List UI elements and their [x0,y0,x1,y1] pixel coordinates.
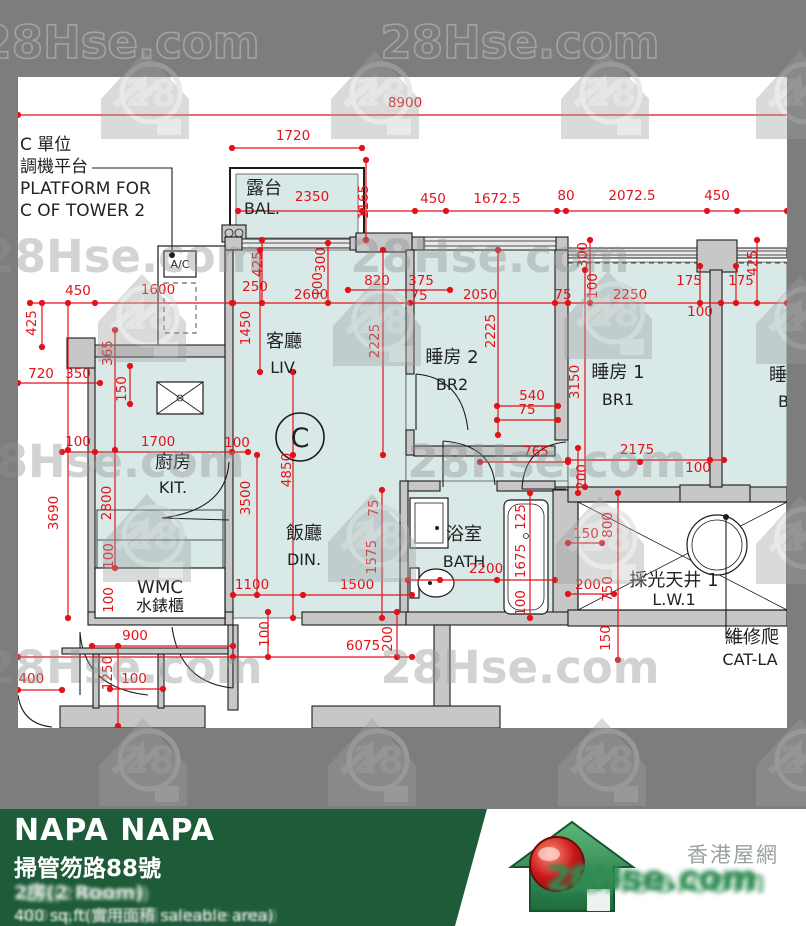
dim-point [15,654,21,660]
room-label-bal: 露台 [246,178,282,199]
dim-label: 2072.5 [608,188,655,204]
dim-point [527,490,533,496]
dim-label: 175 [676,273,702,289]
dim-point [495,432,501,438]
dim-label: 200 [574,464,590,490]
ac-platform-annotation: C 單位調機平台PLATFORM FORC OF TOWER 2 [20,135,151,221]
room-label-br3: 睡房 [769,365,805,386]
dim-point [718,300,724,306]
dim-point [127,363,133,369]
dim-label: 1575 [364,540,380,574]
dim-point [477,459,483,465]
dim-point [697,263,703,269]
dim-point [409,654,415,660]
brand-wordmark: 28Hse.com [546,859,760,899]
dim-label: 6075 [346,638,380,654]
dim-label: 750 [600,576,616,602]
dim-point [733,263,739,269]
dim-point [563,208,569,214]
dim-point [15,687,21,693]
dim-point [112,447,118,453]
dim-label: 765 [523,444,549,460]
dim-label: 100 [101,587,117,613]
dim-point [27,300,33,306]
dim-point [59,687,65,693]
room-label-br2: 睡房 2 [425,347,478,368]
dim-label: 2250 [613,287,647,303]
dim-label: 1450 [238,311,254,345]
dim-point [325,240,331,246]
dim-label: 350 [65,366,91,382]
dim-label: 2350 [295,189,329,205]
dim-label: 75 [410,288,427,304]
saleable-area-text: 400 sq.ft(實用面積 saleable area) [14,902,274,926]
dim-label: 1600 [141,282,175,298]
dim-point [575,445,581,451]
dim-point [363,157,369,163]
dim-point [447,287,453,293]
dim-label: 2200 [469,561,503,577]
dim-label: 1100 [235,577,269,593]
dim-label: 425 [250,251,266,277]
dim-label: 1675 [513,544,529,578]
dim-label: 100 [65,434,91,450]
dim-label: 2225 [367,324,383,358]
dim-point [787,112,793,118]
dim-point [565,540,571,546]
room-label-br1-en: BR1 [602,390,634,409]
dim-point [587,300,593,306]
dim-point [345,287,351,293]
dim-point [265,654,271,660]
estate-name: NAPA NAPA [14,813,215,848]
dim-point [115,723,121,729]
dim-point [15,112,21,118]
dim-label: 3690 [46,496,62,530]
pillar [697,240,737,272]
dim-label: 300 [575,242,591,268]
ac-annotation-line: PLATFORM FOR [20,179,151,199]
dim-point [394,654,400,660]
dim-label: 300 [313,247,329,273]
footer-bar: NAPA NAPA 掃管笏路88號 2房(2 Room) 400 sq.ft(實… [0,809,806,926]
room-label-wmc: WMC [137,577,183,598]
dim-label: 3500 [238,481,254,515]
dim-label: 425 [24,310,40,336]
dim-label: 2050 [463,287,497,303]
dim-label: 365 [100,340,116,366]
dim-point [555,417,561,423]
dim-label: 125 [513,504,529,530]
dim-point [754,300,760,306]
dim-point [494,577,500,583]
dim-label: 100 [121,671,147,687]
dim-label: 80 [557,188,574,204]
dim-point [97,380,103,386]
dim-point [379,487,385,493]
dim-label: 75 [554,287,571,303]
dim-label: 1250 [100,656,116,690]
dim-point [409,592,415,598]
dim-point [380,247,386,253]
basin-cabinet [410,498,448,548]
light-well-pipe [687,515,747,575]
dim-point [599,540,605,546]
unit-mark: C [291,423,310,454]
dim-label: 820 [364,273,390,289]
dim-point [733,300,739,306]
room-label-br3-en: BR [778,392,800,411]
dim-label: 3150 [567,365,583,399]
dim-label: 1165 [356,185,372,219]
room-label-wmc-en: 水錶櫃 [136,596,184,615]
dim-label: 800 [600,512,616,538]
dim-label: 150 [114,376,130,402]
brand-panel: 香港屋網 28Hse.com [455,809,806,926]
dim-point [300,592,306,598]
dim-label: 450 [65,283,91,299]
room-label-bal-en: BAL. [244,199,280,218]
dim-point [257,369,263,375]
dim-point [565,591,571,597]
dim-label: 8900 [388,95,422,111]
dim-point [495,247,501,253]
dim-point [265,609,271,615]
dim-label: 100 [585,273,601,299]
room-label-liv: 客廳 [266,331,302,352]
dim-label: 2800 [99,486,115,520]
dim-label: 75 [366,499,382,516]
dim-point [112,327,118,333]
dim-point [394,609,400,615]
dim-label: 100 [685,460,711,476]
dim-point [65,300,71,306]
room-label-catl: 維修爬 [725,627,779,648]
dim-label: 200 [575,577,601,593]
dim-point [615,490,621,496]
dim-point [359,145,365,151]
dim-point [554,208,560,214]
dim-point [637,459,643,465]
dim-point [15,380,21,386]
room-label-din-en: DIN. [287,550,321,569]
dim-point [784,300,790,306]
dim-point [160,686,166,692]
dim-point [555,403,561,409]
dim-point [437,577,443,583]
dim-point [412,208,418,214]
dim-point [754,237,760,243]
dim-label: 1700 [141,434,175,450]
dim-point [494,417,500,423]
dim-point [230,654,236,660]
dim-label: 2225 [483,314,499,348]
dim-label: 75 [518,402,535,418]
dim-point [363,237,369,243]
room-label-din: 飯廳 [286,523,322,544]
dim-point [92,300,98,306]
dim-label: 1720 [276,128,310,144]
room-label-kit-en: KIT. [159,478,187,497]
dim-point [115,643,121,649]
ac-annotation-line: C OF TOWER 2 [20,201,145,221]
dim-point [230,643,236,649]
dim-label: 425 [745,250,761,276]
dim-label: 2175 [620,442,654,458]
room-label-br1: 睡房 1 [591,362,644,383]
dim-point [235,208,241,214]
room-label-liv-en: LIV. [270,358,298,377]
floorplan-screenshot: { "watermark": { "text": "28Hse.com", "l… [0,0,806,926]
dim-label: 100 [101,543,117,569]
dim-point [565,457,571,463]
unit-type-text: 2房(2 Room) [14,878,144,905]
br2-window [412,237,568,250]
dim-point [92,449,98,455]
dim-label: 100 [257,621,273,647]
dim-label: 100 [687,304,713,320]
room-label-catl-en: CAT-LA [722,650,777,669]
dim-label: 100 [224,435,250,451]
dim-point [721,457,727,463]
dim-label: 1672.5 [473,191,520,207]
dim-label: 4850 [279,453,295,487]
dim-point [89,643,95,649]
dim-label: 1500 [340,577,374,593]
dim-point [259,300,265,306]
ac-unit-label: A/C [171,258,190,271]
dim-point [229,145,235,151]
dim-label: 1400 [10,671,44,687]
room-label-bath: 浴室 [446,524,482,545]
ac-annotation-line: C 單位 [20,135,71,155]
room-label-lw: 採光天井 1 [629,570,718,591]
dim-label: 100 [513,590,529,616]
dim-label: 375 [408,273,434,289]
dim-label: 450 [420,191,446,207]
dim-point [39,344,45,350]
room-label-kit: 廚房 [155,451,191,473]
dim-point [734,208,740,214]
dim-point [405,577,411,583]
dim-point [494,403,500,409]
dim-label: 200 [380,626,396,652]
dim-point [229,300,235,306]
dim-point [65,615,71,621]
dim-point [552,577,558,583]
dim-point [443,208,449,214]
dim-label: 720 [28,366,54,382]
dim-point [259,237,265,243]
dim-label: 150 [573,526,599,542]
dim-point [615,657,621,663]
dim-point [290,615,296,621]
dim-point [380,452,386,458]
room-label-br2-en: BR2 [436,375,468,394]
dim-point [39,300,45,306]
dim-label: 2600 [294,287,328,303]
ac-annotation-line: 調機平台 [20,157,88,177]
dim-point [704,208,710,214]
dim-point [379,615,385,621]
dim-label: 450 [704,188,730,204]
room-label-lw-en: L.W.1 [652,590,695,609]
dim-label: 900 [122,628,148,644]
dim-point [784,208,790,214]
dim-label: 150 [598,625,614,651]
dim-point [254,452,260,458]
dim-label: 250 [242,279,268,295]
floor-plan: C A/C 露台BAL.客廳LIV.飯廳DIN.睡房 2BR2睡房 1BR1睡房… [0,0,806,926]
